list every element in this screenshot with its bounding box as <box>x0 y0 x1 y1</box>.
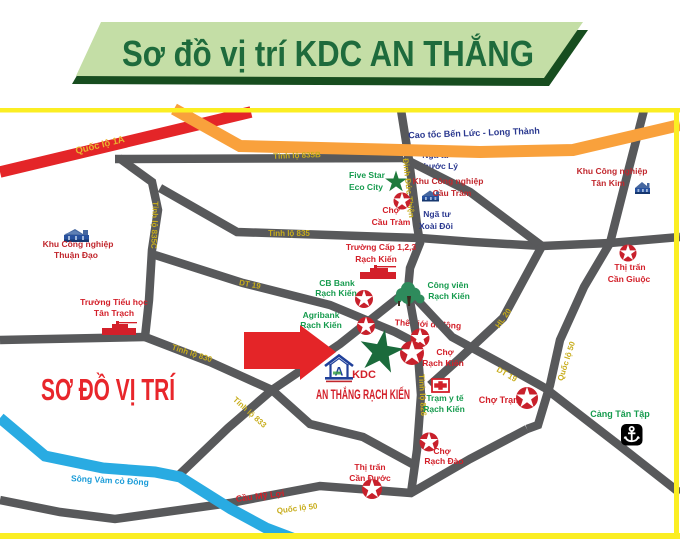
svg-text:Quốc lộ 50: Quốc lộ 50 <box>276 501 318 515</box>
svg-text:Trường Cấp 1,2,3: Trường Cấp 1,2,3 <box>346 242 417 252</box>
svg-text:Tỉnh lộ 835B: Tỉnh lộ 835B <box>273 150 321 161</box>
svg-text:Ngã tư: Ngã tư <box>423 209 451 219</box>
svg-text:Khu Công nghiệp: Khu Công nghiệp <box>43 239 114 249</box>
svg-text:Trạm y tế: Trạm y tế <box>426 393 464 403</box>
svg-text:Rạch Kiến: Rạch Kiến <box>423 404 465 414</box>
svg-text:Rạch Đào: Rạch Đào <box>424 456 463 466</box>
svg-text:Công viên: Công viên <box>427 280 468 290</box>
svg-text:Thị trấn: Thị trấn <box>354 462 385 472</box>
svg-text:Cảng Tân Tập: Cảng Tân Tập <box>590 409 650 419</box>
svg-text:Cầu Tràm: Cầu Tràm <box>433 188 472 198</box>
svg-text:Rạch Kiến: Rạch Kiến <box>355 254 397 264</box>
svg-text:Agribank: Agribank <box>303 310 340 320</box>
svg-text:Thuận Đạo: Thuận Đạo <box>54 250 98 260</box>
svg-text:Sơ đồ vị trí KDC AN THẮNG: Sơ đồ vị trí KDC AN THẮNG <box>122 32 534 74</box>
svg-text:DT 19: DT 19 <box>238 278 262 291</box>
svg-text:Cần Giuộc: Cần Giuộc <box>608 274 651 284</box>
svg-text:Chợ: Chợ <box>382 205 400 215</box>
svg-text:Thị trấn: Thị trấn <box>614 262 645 272</box>
svg-text:Rạch Kiến: Rạch Kiến <box>315 288 357 298</box>
svg-text:Tỉnh lộ 835: Tỉnh lộ 835 <box>268 229 310 238</box>
svg-text:Tân Kim: Tân Kim <box>591 178 625 188</box>
svg-text:Tân Trạch: Tân Trạch <box>94 308 134 318</box>
svg-text:Xoài Đôi: Xoài Đôi <box>419 221 453 231</box>
svg-text:Cao tốc Bến Lức - Long Thành: Cao tốc Bến Lức - Long Thành <box>408 126 540 141</box>
svg-text:Chợ: Chợ <box>436 347 454 357</box>
svg-text:Thế giới di động: Thế giới di động <box>395 317 462 330</box>
svg-text:Tỉnh lộ 835C: Tỉnh lộ 835C <box>149 201 160 249</box>
svg-text:Rạch Kiến: Rạch Kiến <box>428 291 470 301</box>
svg-text:Khu Công nghiệp: Khu Công nghiệp <box>413 176 484 186</box>
svg-text:AN THẮNG RẠCH KIẾN: AN THẮNG RẠCH KIẾN <box>316 385 410 402</box>
svg-text:Trường Tiểu học: Trường Tiểu học <box>80 297 148 307</box>
svg-text:Chợ Trạm: Chợ Trạm <box>479 395 521 405</box>
svg-text:Cầu Tràm: Cầu Tràm <box>372 217 411 227</box>
svg-text:Khu Công nghiệp: Khu Công nghiệp <box>577 166 648 176</box>
svg-text:Rạch Kiến: Rạch Kiến <box>422 358 464 368</box>
svg-text:CB Bank: CB Bank <box>319 278 355 288</box>
svg-text:KDC: KDC <box>352 369 376 381</box>
svg-text:Five Star: Five Star <box>349 170 386 180</box>
svg-text:SƠ ĐỒ VỊ TRÍ: SƠ ĐỒ VỊ TRÍ <box>41 371 176 407</box>
svg-text:Chợ: Chợ <box>433 446 451 456</box>
svg-text:Eco City: Eco City <box>349 182 383 192</box>
svg-text:Rạch Kiến: Rạch Kiến <box>300 320 342 330</box>
